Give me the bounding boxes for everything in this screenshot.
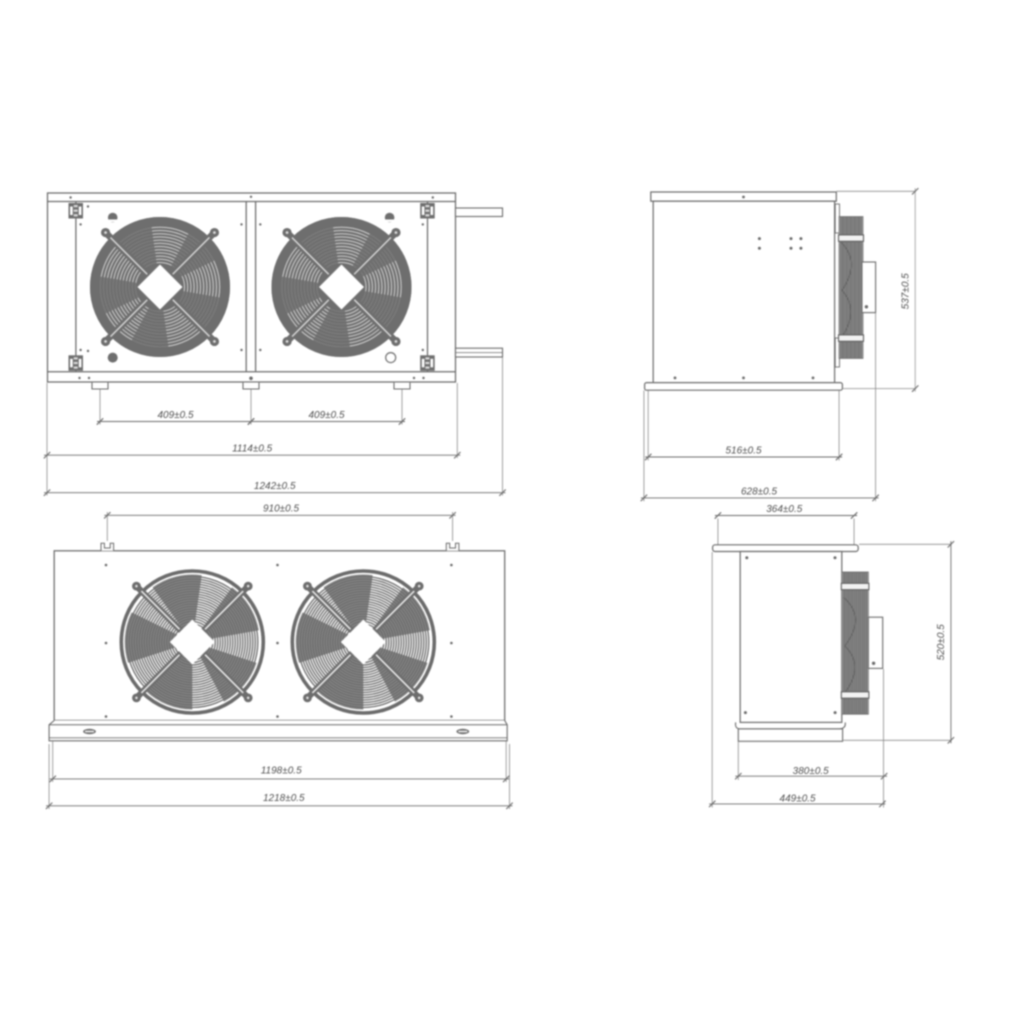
svg-text:364±0.5: 364±0.5 (766, 504, 803, 515)
svg-text:1198±0.5: 1198±0.5 (261, 766, 302, 777)
svg-text:409±0.5: 409±0.5 (308, 410, 345, 421)
svg-text:516±0.5: 516±0.5 (725, 445, 762, 456)
svg-text:537±0.5: 537±0.5 (901, 273, 912, 310)
svg-text:1242±0.5: 1242±0.5 (254, 481, 296, 492)
svg-text:1218±0.5: 1218±0.5 (263, 793, 305, 804)
svg-text:628±0.5: 628±0.5 (741, 486, 778, 497)
svg-text:449±0.5: 449±0.5 (780, 793, 817, 804)
svg-text:1114±0.5: 1114±0.5 (232, 444, 273, 455)
svg-text:380±0.5: 380±0.5 (793, 766, 830, 777)
svg-text:409±0.5: 409±0.5 (157, 410, 194, 421)
svg-text:910±0.5: 910±0.5 (263, 504, 300, 515)
svg-text:520±0.5: 520±0.5 (936, 624, 947, 661)
